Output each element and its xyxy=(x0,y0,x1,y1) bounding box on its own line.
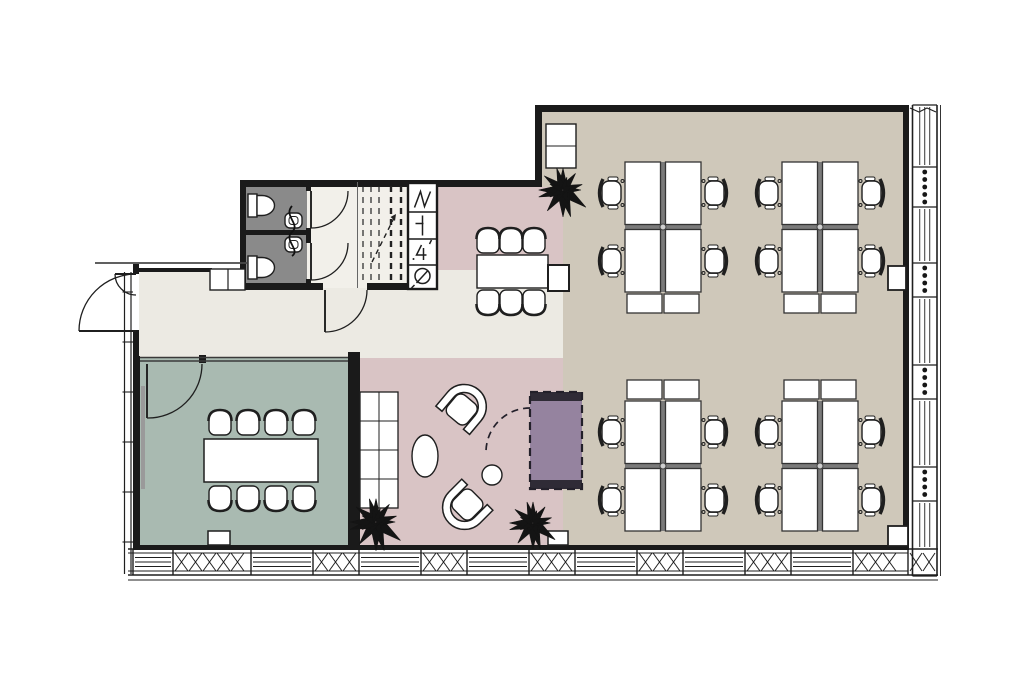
shelf-unit xyxy=(360,392,398,508)
wall-corridor-top-b xyxy=(367,283,408,290)
toilet-icon xyxy=(248,256,275,279)
window-band-bottom xyxy=(128,549,938,580)
meeting-chair xyxy=(523,228,546,253)
cable-hub-icon xyxy=(817,463,823,469)
desk xyxy=(823,469,859,532)
toilet-icon xyxy=(248,194,275,217)
desk xyxy=(823,162,859,225)
wall-corridor-top-a xyxy=(240,283,323,290)
expansion-joint-icon xyxy=(910,108,936,112)
desk xyxy=(625,469,661,532)
meeting-chair xyxy=(209,486,232,511)
desk xyxy=(666,162,702,225)
wall-wc-divider xyxy=(245,230,307,235)
whiteboard xyxy=(141,386,145,489)
meeting-chair xyxy=(293,410,316,435)
side-table-square xyxy=(548,265,569,291)
wall-bottom xyxy=(133,545,909,550)
storage-cabinet xyxy=(627,294,662,313)
desk xyxy=(666,401,702,464)
meeting-chair xyxy=(523,290,546,315)
desk xyxy=(782,469,818,532)
desk xyxy=(782,401,818,464)
floor-plan xyxy=(0,0,1024,683)
radiator-box xyxy=(888,526,908,546)
room-vestibule xyxy=(307,182,357,288)
storage-cabinet xyxy=(784,380,819,399)
wall-meeting-right xyxy=(348,352,360,545)
wall-wing-top xyxy=(240,180,542,187)
sink-icon xyxy=(285,213,302,228)
radiator-box xyxy=(888,266,906,290)
wall-office-left-upper xyxy=(535,105,542,187)
floor-plan-svg xyxy=(0,0,1024,683)
window-band-left xyxy=(123,272,134,574)
door-entrance-main xyxy=(79,274,136,331)
cable-hub-icon xyxy=(660,224,666,230)
meeting-chair xyxy=(500,290,523,315)
desk xyxy=(666,230,702,293)
meeting-table xyxy=(477,255,548,288)
wall-glass-mullion xyxy=(199,355,206,363)
wall-wc-right-a xyxy=(306,182,311,191)
desk xyxy=(666,469,702,532)
conference-table xyxy=(204,439,318,482)
wall-entry-left-b xyxy=(133,330,139,360)
storage-cabinet xyxy=(664,380,699,399)
utility-shaft xyxy=(408,183,437,289)
wall-entry-left-a xyxy=(133,264,139,274)
meeting-chair xyxy=(209,410,232,435)
wall-wc-right-b xyxy=(306,228,311,243)
meeting-chair xyxy=(237,486,260,511)
desk xyxy=(782,230,818,293)
desk xyxy=(625,162,661,225)
radiator-box xyxy=(208,531,230,545)
meeting-chair xyxy=(265,410,288,435)
meeting-chair xyxy=(265,486,288,511)
wall-entry-top xyxy=(133,268,212,272)
desk xyxy=(782,162,818,225)
meeting-chair xyxy=(477,228,500,253)
storage-cabinet xyxy=(784,294,819,313)
cable-hub-icon xyxy=(660,463,666,469)
desk xyxy=(625,230,661,293)
storage-cabinet xyxy=(627,380,662,399)
coffee-table-oval xyxy=(412,435,438,477)
cabinet xyxy=(546,124,576,168)
wall-meeting-left xyxy=(133,356,140,545)
desk xyxy=(823,401,859,464)
window-band-right xyxy=(910,105,941,576)
meeting-chair xyxy=(237,410,260,435)
storage-cabinet xyxy=(664,294,699,313)
side-table-round xyxy=(482,465,502,485)
storage-cabinet xyxy=(821,380,856,399)
meeting-chair xyxy=(293,486,316,511)
storage-cabinet xyxy=(821,294,856,313)
meeting-chair xyxy=(477,290,500,315)
wall-office-top xyxy=(535,105,909,112)
wall-office-right xyxy=(903,105,909,550)
cable-hub-icon xyxy=(817,224,823,230)
meeting-chair xyxy=(500,228,523,253)
entry-niche xyxy=(210,269,245,290)
desk xyxy=(625,401,661,464)
desk xyxy=(823,230,859,293)
